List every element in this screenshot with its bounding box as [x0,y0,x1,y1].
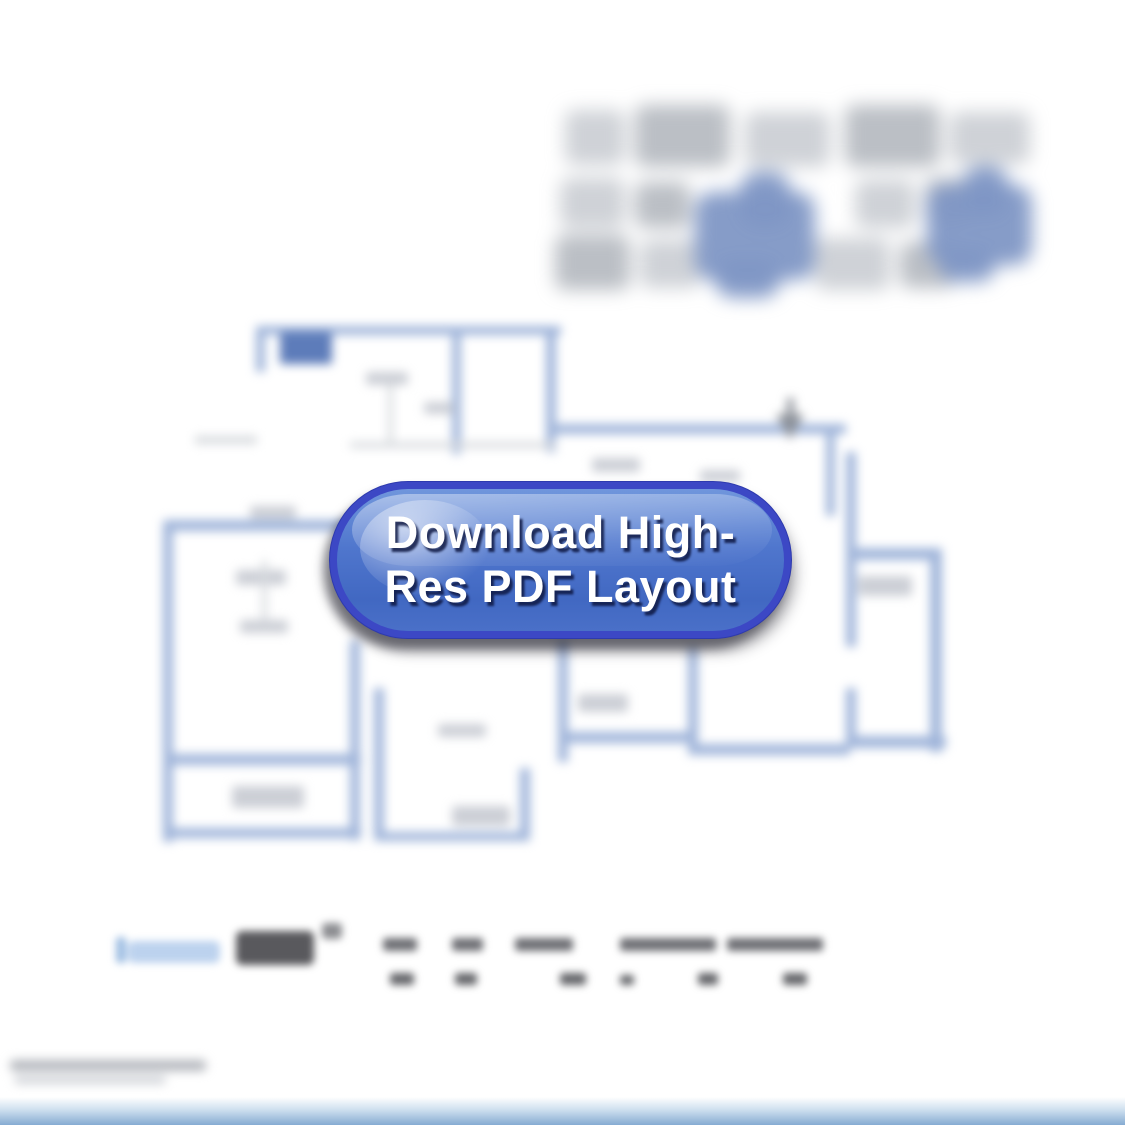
room-label-blob [452,806,510,826]
page: Download High- Res PDF Layout [0,0,1125,1125]
wall-segment [688,744,850,755]
table-value-blob [560,973,586,985]
wall-segment [280,332,332,364]
table-value-blob [783,973,807,985]
blur-blob [950,112,1030,164]
bottom-accent-bar [0,1097,1125,1125]
wall-segment [912,736,946,748]
download-button-label-line2: Res PDF Layout [384,560,736,614]
wall-segment [163,520,361,531]
room-label-blob [424,402,454,414]
room-label-blob [232,786,304,808]
wall-segment [350,640,360,840]
wall-segment [374,688,384,838]
table-value-blob [455,973,477,985]
wall-segment [520,768,530,840]
blur-blob [845,105,940,167]
blur-blob [555,235,630,290]
table-header-blob [727,938,823,951]
interior-line [195,436,257,444]
blurred-unit-spec-row [100,915,870,1007]
logo-emblem-blue [963,166,1008,216]
unit-name-blob [128,941,220,963]
table-value-blob [698,973,718,985]
wall-segment [560,732,695,743]
footer-text-blob [14,1076,166,1084]
room-label-blob [592,458,640,472]
entrance-arrow-icon [776,414,804,440]
download-pdf-button[interactable]: Download High- Res PDF Layout [329,481,792,639]
table-value-blob [620,975,634,985]
footer-text-blob [10,1060,206,1071]
room-label-blob [250,506,296,519]
wall-segment [163,828,361,838]
interior-line [388,380,393,442]
wall-segment [846,452,856,647]
table-header-blob [515,938,573,951]
interior-line [262,560,267,620]
room-label-blob [366,372,408,385]
table-header-blob [383,938,417,951]
wall-segment [826,424,835,516]
wall-segment [163,520,173,842]
blur-blob [815,238,890,290]
logo-emblem-blue [940,250,995,282]
table-header-blob [452,938,483,951]
table-header-blob [620,938,716,951]
room-label-blob [438,724,486,737]
blur-blob [560,178,625,228]
download-button-label-line1: Download High- [384,506,736,560]
blur-blob [635,105,730,167]
table-value-blob [390,973,414,985]
wall-segment [374,832,530,841]
room-label-blob [858,576,912,596]
blur-blob [745,112,830,167]
wall-segment [930,552,942,752]
superscript-blob [322,923,342,939]
blurred-logo-area [555,100,1045,300]
blur-blob [116,937,126,963]
blur-blob [855,180,915,228]
interior-line [350,442,556,448]
wall-segment [558,640,568,762]
wall-segment [256,326,265,372]
blur-blob [635,182,690,228]
wall-segment [163,754,361,765]
room-label-blob [240,620,288,633]
room-label-blob [236,570,286,585]
wall-segment [688,646,698,744]
blur-blob [640,240,700,288]
wall-segment [546,326,556,452]
download-button-label: Download High- Res PDF Layout [384,506,736,614]
room-label-blob [578,694,628,712]
blur-blob [565,110,625,165]
wall-segment [452,326,461,454]
area-value-blob [236,931,314,965]
blurred-footer-note [10,1055,230,1095]
logo-emblem-blue [740,172,790,227]
